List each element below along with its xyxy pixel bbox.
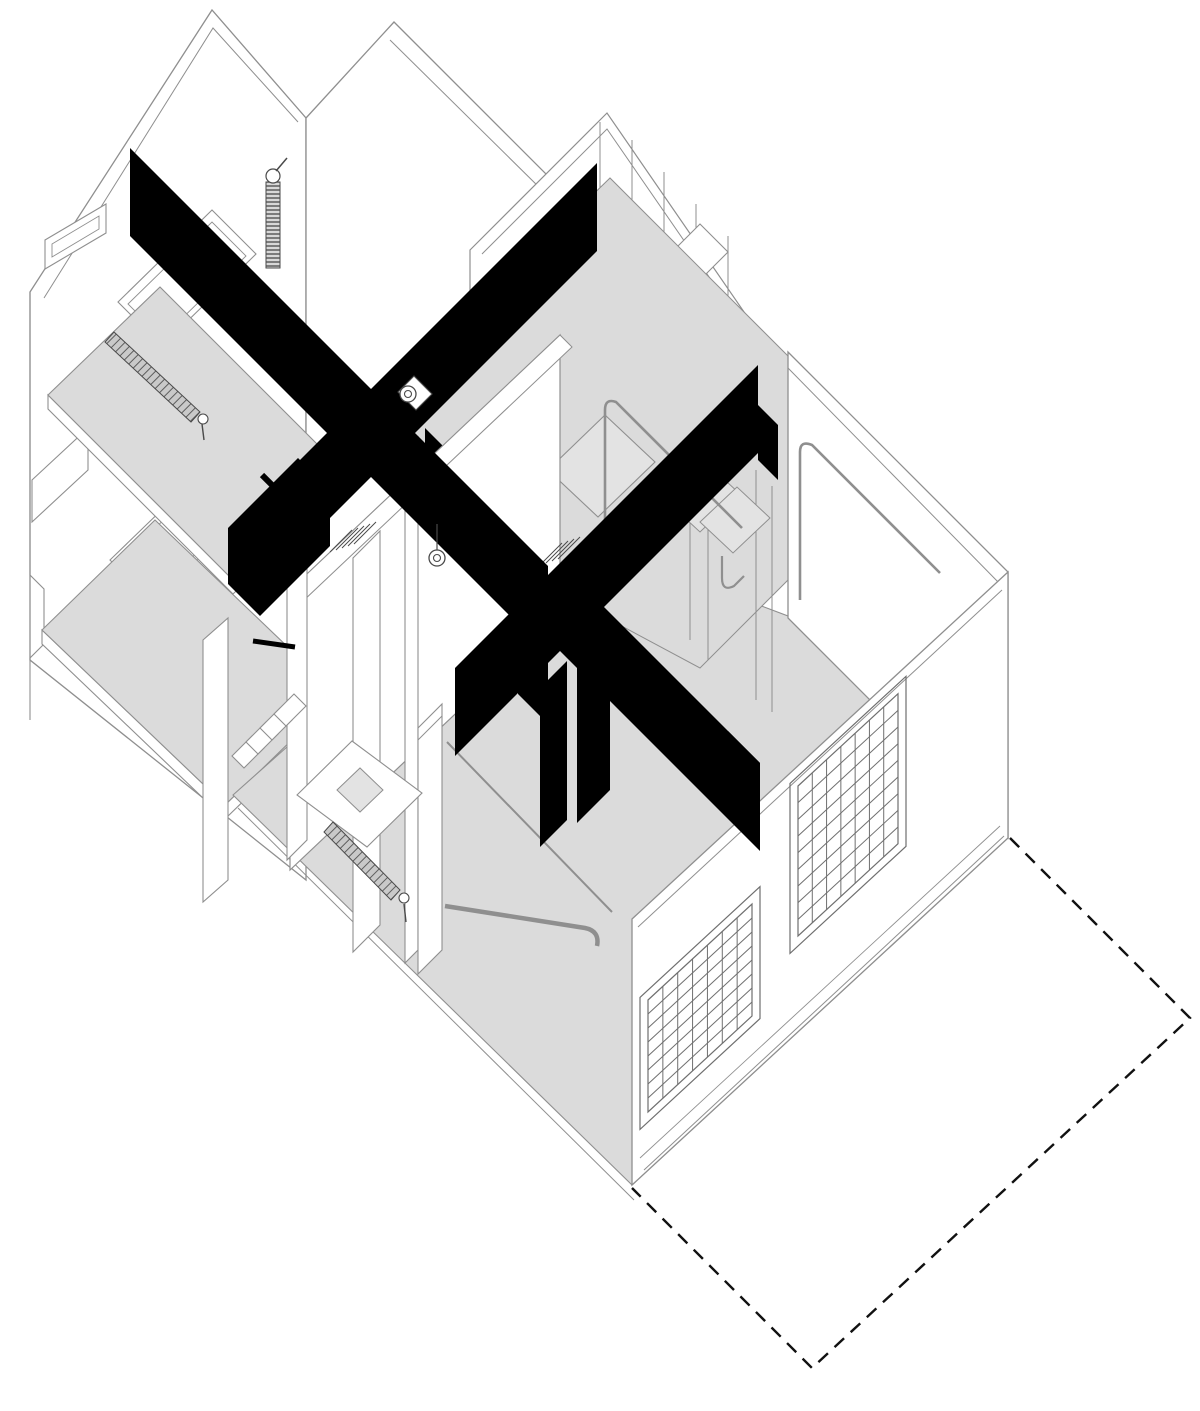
door-jamb-post	[203, 618, 228, 902]
radiator-upper-cap	[198, 414, 208, 424]
drawing-stage	[0, 0, 1200, 1411]
column-2	[353, 531, 380, 952]
pendant-lamp-2-bulb	[434, 555, 441, 562]
axonometric-cutaway-drawing	[0, 0, 1200, 1411]
radiator-lower-cap	[399, 893, 409, 903]
heating-pipe-valve	[266, 169, 280, 183]
heating-pipe-coil	[266, 182, 280, 268]
column-3-front	[418, 704, 442, 974]
pendant-lamp-1-bulb	[405, 391, 412, 398]
beam-x2-hanger-bar-1	[540, 661, 567, 847]
beam-x2-hanger-bar-2	[577, 618, 610, 823]
shape-layer	[30, 10, 1008, 1200]
